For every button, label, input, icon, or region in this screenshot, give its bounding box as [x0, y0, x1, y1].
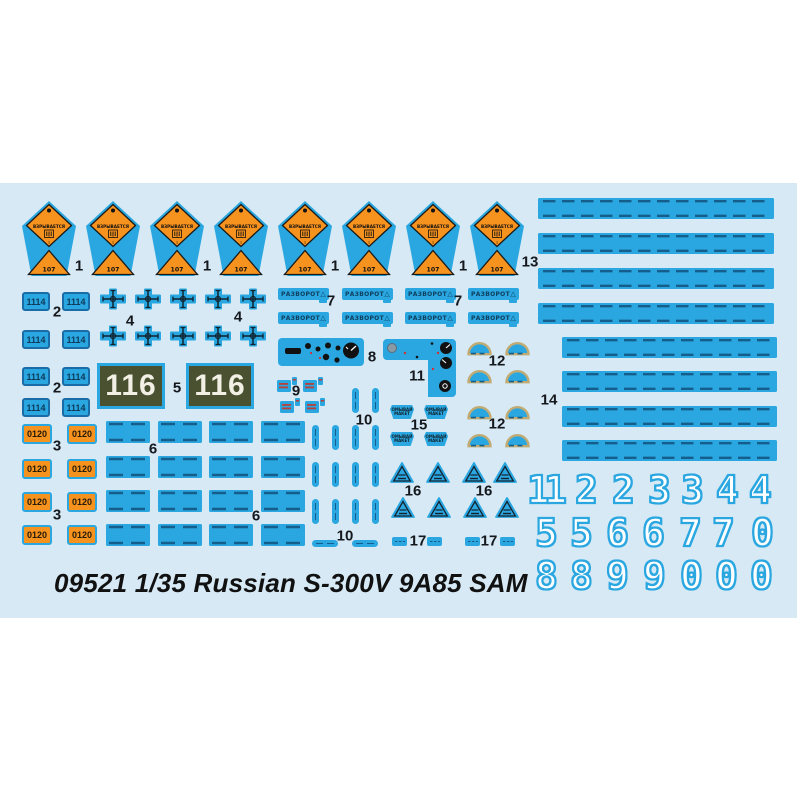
dash-rect-decal: [106, 456, 150, 478]
razvorot-strip-decal: РАЗВОРОТ △: [405, 288, 456, 300]
sight-cross-decal: [240, 325, 266, 347]
plate-0120-decal: 0120: [22, 492, 52, 512]
stencil-digit: 3: [681, 471, 704, 509]
razvorot-text: РАЗВОРОТ: [281, 315, 320, 322]
strip-tab: [319, 321, 327, 327]
svg-text:107: 107: [299, 267, 312, 274]
warning-triangle-decal: [426, 462, 450, 483]
dash-rect-decal: [261, 524, 305, 546]
svg-text:1: 1: [240, 241, 242, 245]
stencil-digit: 5: [535, 514, 558, 552]
svg-text:1: 1: [368, 241, 370, 245]
svg-text:1: 1: [112, 241, 114, 245]
part-number-label: 12: [489, 353, 506, 370]
part-number-label: 6: [149, 441, 157, 458]
striped-tag-decal: [305, 398, 325, 414]
part-number-label: 14: [541, 392, 558, 409]
part-number-label: 15: [411, 417, 428, 434]
stencil-digit: 6: [606, 514, 629, 552]
part-number-label: 8: [368, 349, 376, 366]
long-strip-decal: [538, 268, 774, 289]
plate-1114-decal: 1114: [62, 292, 90, 311]
stencil-digit: 7: [712, 514, 735, 552]
plate-0120-decal: 0120: [67, 459, 97, 479]
long-strip-decal: [538, 303, 774, 324]
stencil-digit: 2: [575, 471, 598, 509]
long-strip-decal: [538, 198, 774, 219]
warning-pentagon-decal: ВЗРЫВАЕТСЯ 1 107: [469, 200, 525, 277]
warning-triangle-decal: [493, 462, 517, 483]
strip-tab: [446, 321, 454, 327]
svg-text:ВЗРЫВАЕТСЯ: ВЗРЫВАЕТСЯ: [97, 224, 129, 229]
warning-triangle-decal: [462, 462, 486, 483]
medium-strip-decal: [562, 406, 777, 427]
stencil-digit: 6: [642, 514, 665, 552]
part-number-label: 3: [53, 507, 61, 524]
part-number-label: 9: [292, 383, 300, 400]
dash-bar-decal: [312, 462, 319, 487]
semicircle-decal: [467, 433, 492, 448]
razvorot-strip-decal: РАЗВОРОТ △: [468, 288, 519, 300]
svg-text:107: 107: [427, 267, 440, 274]
dash-bar-decal: [352, 540, 378, 547]
dash-bar-decal: [352, 499, 359, 524]
plate-1114-decal: 1114: [22, 367, 50, 386]
dash-bar-decal: [312, 499, 319, 524]
semicircle-decal: [505, 369, 530, 384]
svg-text:1: 1: [48, 241, 50, 245]
razvorot-text: РАЗВОРОТ: [471, 315, 510, 322]
part-number-label: 4: [126, 313, 134, 330]
warning-triangle-decal: [390, 462, 414, 483]
svg-text:1: 1: [304, 241, 306, 245]
stencil-digit: 7: [679, 514, 702, 552]
warning-pentagon-decal: ВЗРЫВАЕТСЯ 1 107: [213, 200, 269, 277]
part-number-label: 17: [481, 533, 498, 550]
part-number-label: 16: [405, 483, 422, 500]
stencil-digit: 5: [570, 514, 593, 552]
striped-tag-decal: [303, 377, 323, 393]
plate-0120-decal: 0120: [67, 525, 97, 545]
trapezoid-line2: МАКЕТ: [428, 412, 444, 416]
plate-0120-decal: 0120: [22, 525, 52, 545]
semicircle-decal: [505, 405, 530, 420]
plate-0120-decal: 0120: [67, 492, 97, 512]
dash-rect-decal: [158, 490, 202, 512]
dash-rect-decal: [106, 524, 150, 546]
sight-cross-decal: [205, 288, 231, 310]
plate-1114-decal: 1114: [62, 330, 90, 349]
part-number-label: 7: [454, 293, 462, 310]
warning-triangle-decal: [495, 497, 519, 518]
sheet-title: 09521 1/35 Russian S-300V 9A85 SAM: [54, 568, 528, 599]
plate-1114-decal: 1114: [22, 398, 50, 417]
warning-triangle-decal: [427, 497, 451, 518]
part-number-label: 12: [489, 416, 506, 433]
dash-rect-decal: [261, 490, 305, 512]
razvorot-text: РАЗВОРОТ: [345, 291, 384, 298]
dash-rect-decal: [158, 456, 202, 478]
part-number-label: 10: [337, 528, 354, 545]
stencil-digit: 9: [606, 557, 629, 595]
plate-1114-decal: 1114: [62, 398, 90, 417]
razvorot-text: РАЗВОРОТ: [345, 315, 384, 322]
svg-text:ВЗРЫВАЕТСЯ: ВЗРЫВАЕТСЯ: [289, 224, 321, 229]
dash-rect-decal: [209, 421, 253, 443]
medium-strip-decal: [562, 371, 777, 392]
stencil-digit: 9: [643, 557, 666, 595]
razvorot-text: РАЗВОРОТ: [408, 315, 447, 322]
sight-cross-decal: [135, 288, 161, 310]
dash-rect-decal: [209, 524, 253, 546]
long-strip-decal: [538, 233, 774, 254]
plate-116-decal: 116: [97, 363, 165, 409]
stencil-digit: 1: [544, 471, 567, 509]
part-number-label: 7: [327, 293, 335, 310]
small-label-decal: [465, 537, 480, 546]
razvorot-strip-decal: РАЗВОРОТ △: [342, 312, 393, 324]
trapezoid-line2: МАКЕТ: [394, 412, 410, 416]
dash-bar-decal: [352, 462, 359, 487]
dash-rect-decal: [209, 456, 253, 478]
decal-sheet-page: ВЗРЫВАЕТСЯ 1 107 ВЗРЫВАЕТСЯ 1 107 ВЗРЫВА…: [0, 0, 800, 800]
part-number-label: 6: [252, 508, 260, 525]
svg-text:1: 1: [432, 241, 434, 245]
warning-pentagon-decal: ВЗРЫВАЕТСЯ 1 107: [277, 200, 333, 277]
dash-bar-decal: [332, 425, 339, 450]
razvorot-strip-decal: РАЗВОРОТ △: [278, 312, 329, 324]
plate-1114-decal: 1114: [22, 292, 50, 311]
sight-cross-decal: [205, 325, 231, 347]
small-label-decal: [392, 537, 407, 546]
part-number-label: 1: [75, 258, 83, 275]
dash-rect-decal: [261, 421, 305, 443]
sight-cross-decal: [170, 325, 196, 347]
small-label-decal: [427, 537, 442, 546]
strip-tab: [509, 297, 517, 303]
plate-116-decal: 116: [186, 363, 254, 409]
part-number-label: 3: [53, 438, 61, 455]
semicircle-decal: [505, 341, 530, 356]
small-label-decal: [500, 537, 515, 546]
svg-text:ВЗРЫВАЕТСЯ: ВЗРЫВАЕТСЯ: [481, 224, 513, 229]
sight-cross-decal: [170, 288, 196, 310]
stencil-digit: 0: [750, 557, 773, 595]
warning-triangle-decal: [463, 497, 487, 518]
stencil-digit: 0: [715, 557, 738, 595]
trapezoid-label-decal: ОМЫВАЙ МАКЕТ: [424, 405, 448, 419]
dash-bar-decal: [332, 499, 339, 524]
razvorot-text: РАЗВОРОТ: [408, 291, 447, 298]
instrument-panel-decal: [278, 338, 364, 366]
svg-text:107: 107: [363, 267, 376, 274]
dash-bar-decal: [312, 425, 319, 450]
warning-pentagon-decal: ВЗРЫВАЕТСЯ 1 107: [21, 200, 77, 277]
stencil-digit: 4: [716, 471, 739, 509]
sight-cross-decal: [135, 325, 161, 347]
dash-bar-decal: [372, 462, 379, 487]
part-number-label: 2: [53, 380, 61, 397]
warning-pentagon-decal: ВЗРЫВАЕТСЯ 1 107: [85, 200, 141, 277]
trapezoid-line2: МАКЕТ: [428, 439, 444, 443]
strip-tab: [383, 297, 391, 303]
strip-tab: [383, 321, 391, 327]
svg-text:1: 1: [496, 241, 498, 245]
dash-bar-decal: [372, 425, 379, 450]
dash-rect-decal: [209, 490, 253, 512]
trapezoid-label-decal: ОМЫВАЙ МАКЕТ: [424, 432, 448, 446]
svg-text:ВЗРЫВАЕТСЯ: ВЗРЫВАЕТСЯ: [33, 224, 65, 229]
sight-cross-decal: [100, 288, 126, 310]
part-number-label: 2: [53, 304, 61, 321]
stencil-digit: 2: [612, 471, 635, 509]
svg-text:107: 107: [235, 267, 248, 274]
part-number-label: 17: [410, 533, 427, 550]
dash-rect-decal: [158, 421, 202, 443]
razvorot-text: РАЗВОРОТ: [471, 291, 510, 298]
stencil-digit: 8: [570, 557, 593, 595]
dash-bar-decal: [352, 388, 359, 413]
plate-1114-decal: 1114: [62, 367, 90, 386]
dash-rect-decal: [158, 524, 202, 546]
warning-pentagon-decal: ВЗРЫВАЕТСЯ 1 107: [149, 200, 205, 277]
dash-bar-decal: [352, 425, 359, 450]
stencil-digit: 8: [535, 557, 558, 595]
strip-tab: [319, 297, 327, 303]
svg-text:1: 1: [176, 241, 178, 245]
razvorot-strip-decal: РАЗВОРОТ △: [342, 288, 393, 300]
semicircle-decal: [467, 369, 492, 384]
svg-text:107: 107: [43, 267, 56, 274]
part-number-label: 10: [356, 412, 373, 429]
part-number-label: 16: [476, 483, 493, 500]
dash-bar-decal: [312, 540, 338, 547]
part-number-label: 4: [234, 309, 242, 326]
svg-text:ВЗРЫВАЕТСЯ: ВЗРЫВАЕТСЯ: [225, 224, 257, 229]
stencil-digit: 3: [648, 471, 671, 509]
sight-cross-decal: [100, 325, 126, 347]
dash-rect-decal: [106, 490, 150, 512]
trapezoid-line2: МАКЕТ: [394, 439, 410, 443]
medium-strip-decal: [562, 440, 777, 461]
dash-bar-decal: [372, 499, 379, 524]
trapezoid-label-decal: ОМЫВАЙ МАКЕТ: [390, 432, 414, 446]
dash-rect-decal: [261, 456, 305, 478]
semicircle-decal: [505, 433, 530, 448]
stencil-digit: 0: [680, 557, 703, 595]
warning-pentagon-decal: ВЗРЫВАЕТСЯ 1 107: [405, 200, 461, 277]
stencil-digit: 0: [751, 514, 774, 552]
strip-tab: [446, 297, 454, 303]
plate-0120-decal: 0120: [22, 424, 52, 444]
medium-strip-decal: [562, 337, 777, 358]
svg-text:ВЗРЫВАЕТСЯ: ВЗРЫВАЕТСЯ: [353, 224, 385, 229]
plate-0120-decal: 0120: [67, 424, 97, 444]
svg-text:107: 107: [491, 267, 504, 274]
plate-1114-decal: 1114: [22, 330, 50, 349]
part-number-label: 1: [459, 258, 467, 275]
razvorot-strip-decal: РАЗВОРОТ △: [468, 312, 519, 324]
sight-cross-decal: [240, 288, 266, 310]
warning-pentagon-decal: ВЗРЫВАЕТСЯ 1 107: [341, 200, 397, 277]
razvorot-text: РАЗВОРОТ: [281, 291, 320, 298]
part-number-label: 13: [522, 254, 539, 271]
warning-triangle-decal: [391, 497, 415, 518]
part-number-label: 1: [203, 258, 211, 275]
dash-bar-decal: [372, 388, 379, 413]
strip-tab: [509, 321, 517, 327]
part-number-label: 11: [409, 368, 425, 385]
stencil-digit: 4: [749, 471, 772, 509]
dash-rect-decal: [106, 421, 150, 443]
razvorot-strip-decal: РАЗВОРОТ △: [278, 288, 329, 300]
plate-0120-decal: 0120: [22, 459, 52, 479]
part-number-label: 5: [173, 380, 181, 397]
svg-text:ВЗРЫВАЕТСЯ: ВЗРЫВАЕТСЯ: [417, 224, 449, 229]
svg-text:107: 107: [171, 267, 184, 274]
svg-text:ВЗРЫВАЕТСЯ: ВЗРЫВАЕТСЯ: [161, 224, 193, 229]
svg-text:107: 107: [107, 267, 120, 274]
dash-bar-decal: [332, 462, 339, 487]
razvorot-strip-decal: РАЗВОРОТ △: [405, 312, 456, 324]
striped-tag-decal: [280, 398, 300, 414]
part-number-label: 1: [331, 258, 339, 275]
